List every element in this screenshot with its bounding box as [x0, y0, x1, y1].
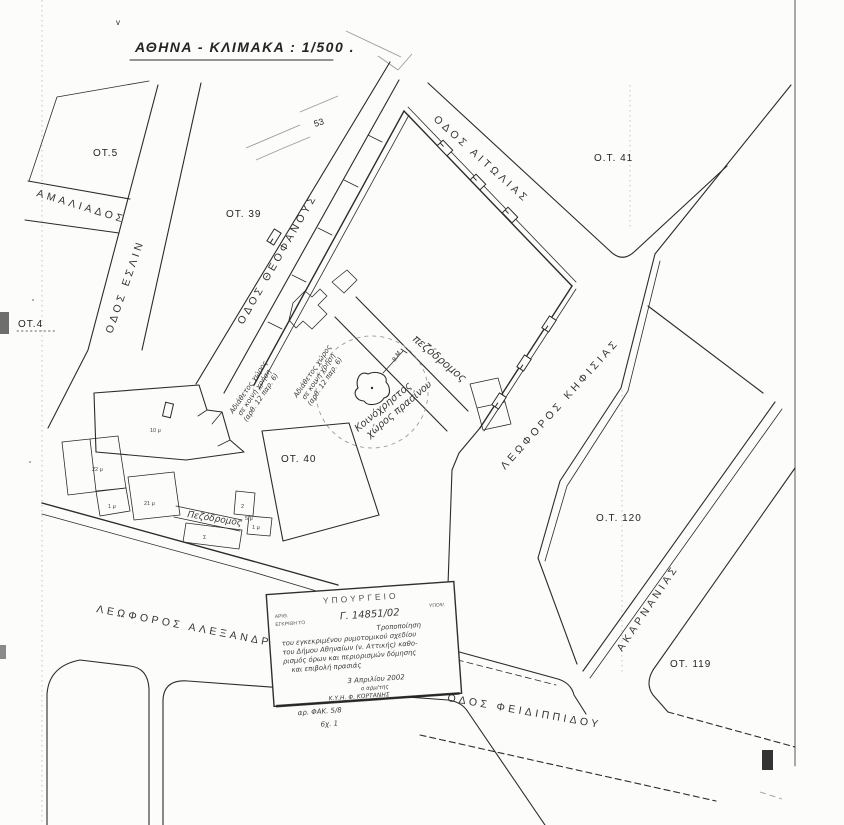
street-amaliados-edge-south [25, 220, 119, 233]
note-pedestrian-way: πεζόδρομος [410, 332, 469, 385]
frontage-ticks [268, 135, 382, 329]
entrance-mark [437, 140, 452, 156]
block-label-ot5: ΟΤ.5 [93, 148, 118, 159]
block-ot40-inner-parcel [262, 423, 379, 541]
entrance-mark [517, 355, 531, 371]
handwritten-annotations: Αδιάθετος χώρος σε κοινή χρήση (αρθ. 12 … [187, 332, 470, 528]
building-footprint [332, 270, 357, 293]
pencil-stroke [246, 96, 338, 160]
street-akarnanias-se-edge [649, 468, 795, 712]
stamp-file-notes: αρ. ΦΑΚ. 5/8 6χ. 1 [297, 706, 343, 730]
parcel-2 [234, 491, 255, 516]
block-label-ot40: ΟΤ. 40 [281, 454, 316, 465]
block-label-ot4: ΟΤ.4 [18, 319, 43, 330]
street-label-akarnanias: ΑΚΑΡΝΑΝΙΑΣ [615, 563, 682, 654]
scan-bottom-dash [760, 792, 782, 799]
street-label-kifisias: ΛΕΩΦΟΡΟΣ ΚΗΦΙΣΙΑΣ [498, 337, 622, 472]
pencil-stroke [346, 31, 412, 70]
scan-blot-left2 [0, 645, 6, 659]
block-label-ot41: Ο.Τ. 41 [594, 153, 633, 164]
street-label-eslin: ΟΔΟΣ ΕΣΛΙΝ [103, 238, 146, 335]
block-ot120-north-edge [648, 306, 763, 393]
check-mark: v [116, 18, 120, 27]
scanned-site-plan: ΑΘΗΝΑ - ΚΛΙΜΑΚΑ : 1/500 . v 53 ΟΤ.5 ΟΤ.4… [0, 0, 844, 825]
entrance-mark [267, 229, 281, 245]
parcel-label: 2 [241, 504, 244, 510]
street-label-alexandras: ΛΕΩΦΟΡΟΣ ΑΛΕΞΑΝΔΡΑΣ [95, 603, 292, 653]
bottom-block-west [47, 660, 149, 825]
site-plan-map: ΑΘΗΝΑ - ΚΛΙΜΑΚΑ : 1/500 . v 53 ΟΤ.5 ΟΤ.4… [0, 0, 844, 825]
parcel-label: 22 μ [92, 467, 103, 473]
pencil-number: 53 [313, 116, 326, 129]
block-label-ot120: Ο.Τ. 120 [596, 513, 642, 524]
sheet-number: 6χ. 1 [320, 719, 338, 728]
entrance-mark [163, 402, 174, 417]
block-ot119-dashed-edge [668, 712, 795, 747]
parcel-label: Σ [203, 535, 207, 541]
scan-blot-left1 [0, 312, 9, 334]
file-number: αρ. ΦΑΚ. 5/8 [297, 706, 342, 717]
parcel-ne-edge [404, 111, 572, 286]
scan-corner-blob [762, 750, 773, 770]
map-title: ΑΘΗΝΑ - ΚΛΙΜΑΚΑ : 1/500 . [134, 39, 355, 55]
note-unallocated-space-1: Αδιάθετος χώρος σε κοινή χρήση (αρθ. 12 … [227, 359, 282, 424]
parcel-1a [96, 488, 130, 516]
entrance-mark [492, 393, 506, 409]
note-unallocated-space-2: Αδιάθετος χώρος σε κοινή χρήση (αρθ. 12 … [291, 343, 346, 408]
tree-center-dot [371, 387, 373, 389]
street-label-feidippidou: ΟΔΟΣ ΦΕΙΔΙΠΠΙΔΟΥ [446, 692, 602, 731]
stamp-small-left1: ΑΡΙΘ. [275, 613, 289, 620]
parcel-label: 1 μ [108, 504, 116, 510]
avenue-kifisias-se-edge [538, 85, 791, 558]
parcel-se-continuation [448, 428, 480, 585]
entrance-mark [470, 174, 485, 190]
street-feidippidou-s-dashed [420, 735, 716, 801]
parcel-label: 5 μ [245, 516, 253, 522]
tree-mark-label: 8.Μ [391, 350, 403, 364]
stamp-small-right: ΥΠΟΨ. [429, 602, 446, 609]
corner-parcels [470, 378, 511, 430]
large-building-parcel [94, 385, 244, 460]
ministry-stamp: ΥΠΟΥΡΓΕΙΟ ΑΡΙΘ. ΕΓΚΡΙΘΗ ΤΟ ΥΠΟΨ. Γ. 1485… [266, 582, 461, 707]
speckle [29, 461, 31, 463]
entrance-mark [542, 316, 556, 332]
parcel-label: 1 μ [252, 525, 260, 531]
street-network [17, 62, 795, 825]
block-label-ot39: ΟΤ. 39 [226, 209, 261, 220]
block-label-ot119: ΟΤ. 119 [670, 659, 711, 670]
street-eslin-edge-east [142, 83, 201, 350]
parcel-label: 21 μ [144, 501, 155, 507]
street-aitolias-ne-edge [428, 83, 727, 257]
parcel-22 [62, 436, 126, 495]
site-interior [62, 270, 511, 549]
speckle [32, 299, 34, 301]
parcel-21 [128, 472, 180, 520]
avenue-alexandras-n-edge-inner [42, 514, 333, 596]
entrance-mark [502, 207, 517, 223]
street-theofanous-edge-se [224, 80, 399, 393]
building-steps [198, 410, 230, 446]
street-label-amaliados: ΑΜΑΛΙΑΔΟΣ [35, 187, 127, 226]
parcel-ne-edge-inner [408, 107, 576, 282]
block-ot5-boundary [29, 81, 149, 181]
street-akarnanias-nw-edge-inner [590, 409, 782, 678]
parcel-label: 10 μ [150, 428, 161, 434]
block-ot120-south-edge [538, 558, 577, 664]
